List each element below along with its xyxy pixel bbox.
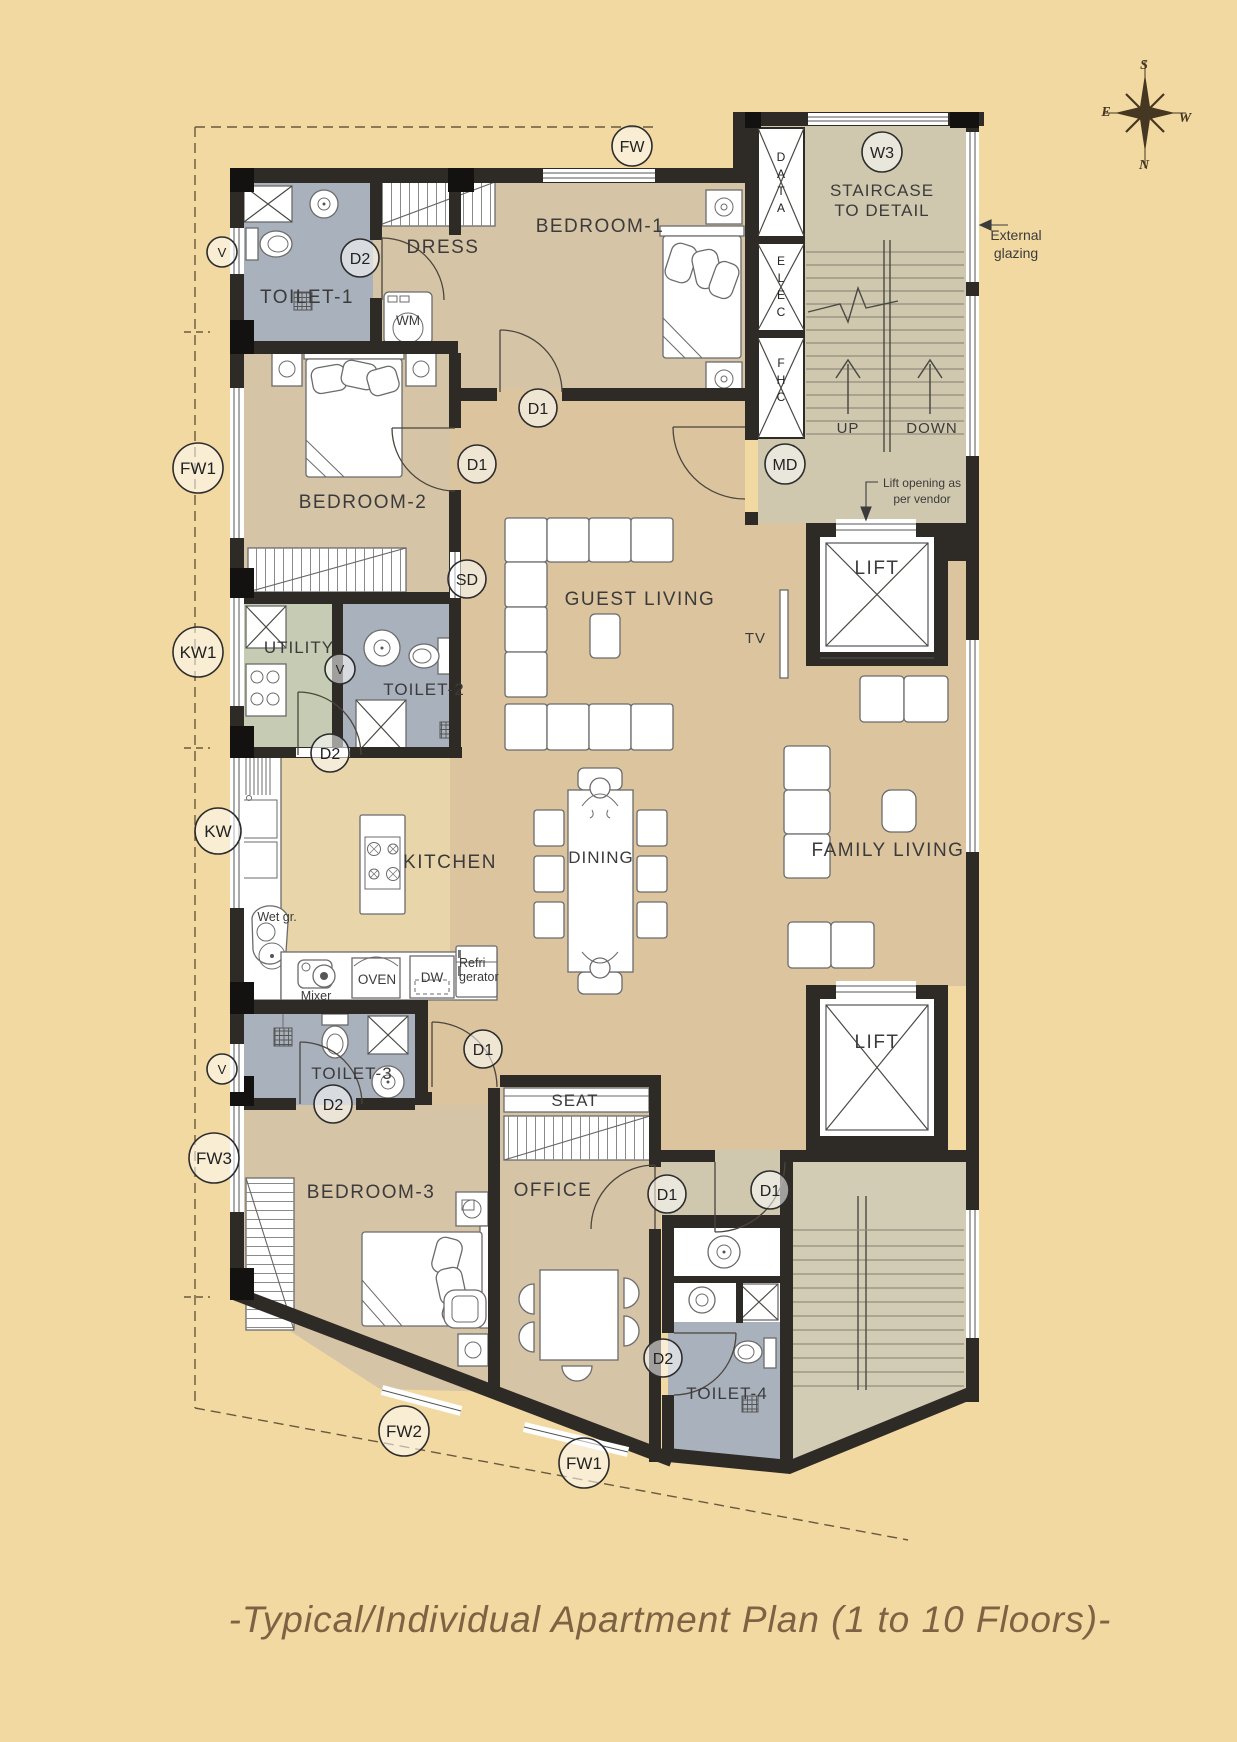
label-staircase-2: TO DETAIL: [834, 201, 929, 220]
marker-fw1-bottom: FW1: [559, 1438, 609, 1488]
label-tv: TV: [745, 630, 766, 647]
wc: [764, 1338, 776, 1368]
marker-d1-bedroom2: D1: [458, 445, 496, 483]
compass-east: E: [1100, 105, 1110, 120]
mixer: [298, 960, 335, 988]
lift-upper: [806, 519, 948, 666]
marker-d1-bedroom1: D1: [519, 389, 557, 427]
marker-fw1-left: FW1: [173, 443, 223, 493]
label-seat: SEAT: [551, 1091, 598, 1110]
label-toilet-4: TOILET-4: [686, 1384, 767, 1403]
svg-text:D2: D2: [320, 746, 341, 763]
kitchen-island: [360, 815, 405, 914]
marker-fw-top: FW: [612, 126, 652, 166]
pouf: [882, 790, 916, 832]
svg-text:D1: D1: [657, 1187, 678, 1204]
svg-text:KW1: KW1: [180, 643, 217, 662]
coffee-table: [590, 614, 620, 658]
marker-d2-utility: D2: [311, 734, 349, 772]
svg-text:MD: MD: [773, 457, 798, 474]
label-wet-grinder: Wet gr.: [257, 910, 296, 924]
marker-d2-toilet3: D2: [314, 1085, 352, 1123]
label-shaft-fhc: FHC: [774, 356, 788, 407]
label-toilet-3: TOILET-3: [311, 1064, 392, 1083]
label-dress: DRESS: [407, 237, 480, 258]
marker-sd: SD: [448, 560, 486, 598]
label-lift-opening-2: per vendor: [893, 492, 950, 506]
svg-text:D1: D1: [528, 401, 549, 418]
label-dining: DINING: [568, 848, 634, 867]
label-mixer: Mixer: [301, 989, 332, 1003]
compass-west: W: [1179, 111, 1193, 126]
marker-d2-toilet1: D2: [341, 239, 379, 277]
plan-title: -Typical/Individual Apartment Plan (1 to…: [229, 1599, 1112, 1640]
label-shaft-data: DATA: [774, 150, 788, 218]
svg-text:SD: SD: [456, 572, 478, 589]
marker-d2-toilet4: D2: [644, 1339, 682, 1377]
label-external-glazing-2: glazing: [994, 245, 1038, 261]
label-refrigerator-2: gerator: [459, 970, 499, 984]
svg-text:KW: KW: [204, 822, 231, 841]
label-refrigerator-1: Refri: [459, 956, 485, 970]
label-toilet-1: TOILET-1: [260, 287, 354, 308]
svg-text:D2: D2: [323, 1097, 344, 1114]
marker-w3: W3: [862, 132, 902, 172]
marker-d1-office: D1: [648, 1175, 686, 1213]
label-lift-upper: LIFT: [854, 558, 899, 579]
svg-text:FW3: FW3: [196, 1149, 232, 1168]
marker-kw1: KW1: [173, 627, 223, 677]
svg-text:FW: FW: [620, 139, 646, 156]
label-shaft-elec: ELEC: [774, 254, 788, 322]
marker-fw2-bottom: FW2: [379, 1406, 429, 1456]
wc: [322, 1014, 348, 1025]
person-figure: [590, 778, 610, 798]
label-up: UP: [837, 420, 860, 437]
marker-v-utility: V: [325, 654, 355, 684]
label-external-glazing-1: External: [990, 227, 1041, 243]
compass-south: S: [1140, 58, 1148, 73]
svg-text:D1: D1: [473, 1042, 494, 1059]
svg-text:V: V: [218, 245, 227, 260]
label-toilet-2: TOILET-2: [383, 680, 464, 699]
label-down: DOWN: [906, 420, 958, 437]
wardrobe-bedroom-2: [248, 548, 406, 592]
label-bedroom-1: BEDROOM-1: [536, 216, 665, 237]
compass-north: N: [1138, 158, 1150, 173]
label-dw: DW: [421, 970, 444, 985]
label-lift-lower: LIFT: [854, 1032, 899, 1053]
label-bedroom-3: BEDROOM-3: [307, 1182, 436, 1203]
svg-text:D1: D1: [760, 1183, 781, 1200]
label-staircase-1: STAIRCASE: [830, 181, 934, 200]
label-guest-living: GUEST LIVING: [565, 589, 716, 610]
svg-text:V: V: [218, 1062, 227, 1077]
label-wm: WM: [396, 313, 420, 328]
label-utility: UTILITY: [264, 638, 334, 657]
marker-d1-entry: D1: [751, 1171, 789, 1209]
svg-text:FW1: FW1: [180, 459, 216, 478]
svg-text:FW1: FW1: [566, 1454, 602, 1473]
lift-lower: [806, 981, 948, 1150]
marker-fw3: FW3: [189, 1133, 239, 1183]
svg-text:V: V: [336, 662, 345, 677]
marker-d1-bedroom3: D1: [464, 1030, 502, 1068]
floor-plan-page: TOILET-1 DRESS BEDROOM-1 BEDROOM-2 UTILI…: [0, 0, 1237, 1742]
svg-text:D2: D2: [350, 251, 371, 268]
marker-kw: KW: [195, 808, 241, 854]
svg-text:D1: D1: [467, 457, 488, 474]
label-lift-opening-1: Lift opening as: [883, 476, 961, 490]
marker-v-toilet3: V: [207, 1054, 237, 1084]
svg-text:W3: W3: [870, 145, 894, 162]
marker-md-main-door: MD: [765, 444, 805, 484]
svg-text:FW2: FW2: [386, 1422, 422, 1441]
marker-v-toilet1: V: [207, 237, 237, 267]
svg-text:D2: D2: [653, 1351, 674, 1368]
floor-plan: TOILET-1 DRESS BEDROOM-1 BEDROOM-2 UTILI…: [0, 0, 1237, 1742]
label-kitchen: KITCHEN: [403, 852, 497, 873]
tv-panel: [780, 590, 788, 678]
label-oven: OVEN: [358, 972, 396, 987]
label-bedroom-2: BEDROOM-2: [299, 492, 428, 513]
shaft-labels: DATA ELEC FHC: [774, 150, 788, 407]
label-office: OFFICE: [514, 1180, 593, 1201]
label-family-living: FAMILY LIVING: [812, 840, 965, 861]
wc: [246, 228, 258, 260]
